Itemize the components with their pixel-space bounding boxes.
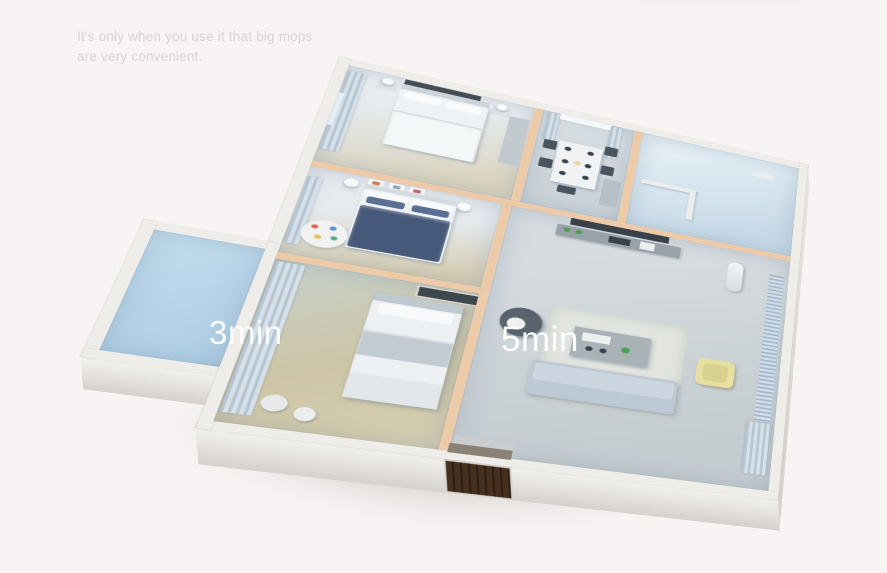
curtains [742,421,770,476]
caption-line1: It's only when you use it that big mops [77,29,313,44]
plant [575,229,583,234]
dining-chair [556,184,576,195]
tray [581,332,611,345]
dining-chair [600,165,615,176]
rug-pattern [311,224,319,229]
apartment-floorplan [33,34,831,544]
small-bedroom-time-label: 3min [209,314,283,352]
yellow-armchair [694,357,735,389]
centerpiece [573,160,581,166]
single-bed [342,291,464,409]
place-setting [587,151,594,156]
media-box [608,236,631,246]
vanity [752,171,774,181]
rug-pattern [329,226,337,231]
entry-door [446,461,512,499]
duvet [382,109,483,162]
caption: It's only when you use it that big mopsa… [77,27,313,66]
table-item [585,346,593,352]
dining-chair [542,139,557,150]
place-setting [582,175,589,180]
sideboard [599,179,622,208]
plant [563,227,571,232]
dining-chair [538,157,553,169]
foot-blanket [342,372,443,410]
rug-pattern [313,234,321,239]
air-conditioner [725,261,744,293]
place-setting [584,164,591,169]
armchair-seat [702,363,729,384]
rug-pattern [330,236,338,241]
floorplan-scene [0,0,887,573]
pouf [291,406,317,422]
place-setting [561,159,568,164]
partition-wall [641,179,696,194]
speaker [639,241,655,251]
pouf [258,393,290,413]
plant [621,347,631,354]
caption-line2: are very convenient. [77,49,203,64]
promo-image: It's only when you use it that big mopsa… [0,0,887,573]
curtains [543,112,560,141]
place-setting [564,146,571,151]
place-setting [559,170,567,175]
table-item [599,348,607,354]
gray-blanket [355,329,454,368]
dining-table [550,140,603,190]
partition-wall [685,189,696,220]
living-room-time-label: 5min [501,320,579,360]
